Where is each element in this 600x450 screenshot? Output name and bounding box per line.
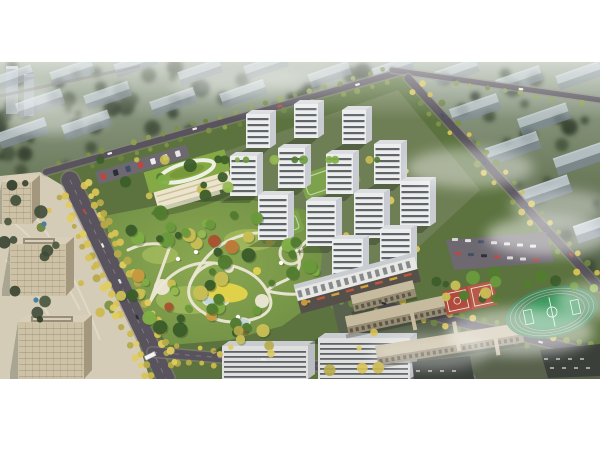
letterboxed-render-page [0,0,600,450]
aerial-masterplan-rendering [0,62,600,379]
rendering-canvas [0,62,600,379]
top-haze [0,62,600,120]
